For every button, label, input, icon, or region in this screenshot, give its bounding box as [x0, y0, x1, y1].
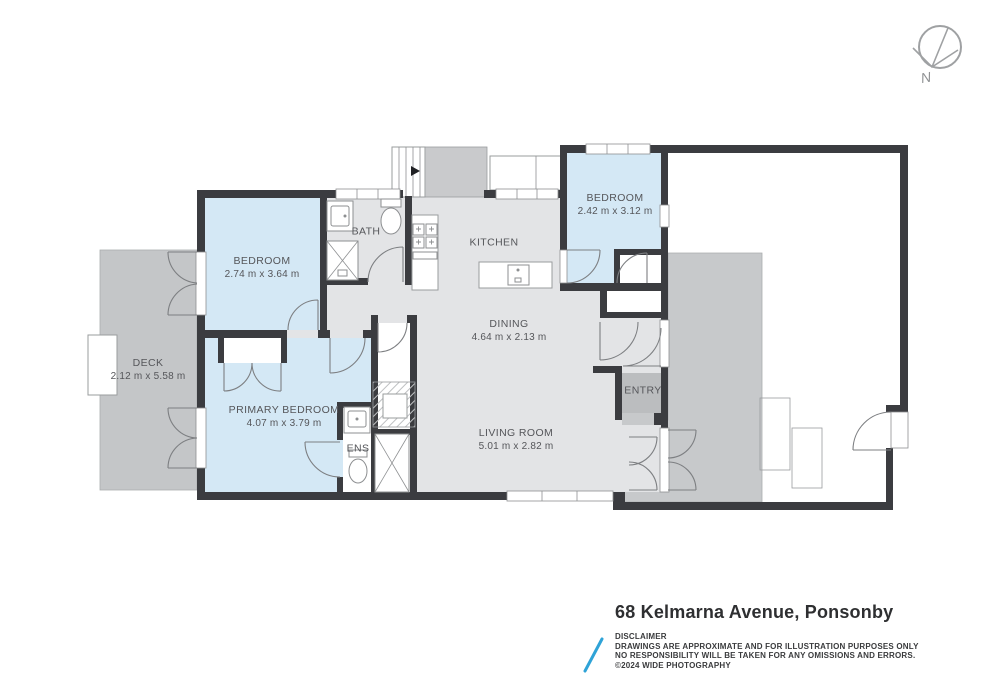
- room-name: DECK: [111, 357, 186, 370]
- bath-toilet-icon: [381, 199, 401, 234]
- stove-icon: [412, 215, 438, 290]
- room-name: DINING: [472, 318, 547, 331]
- room-label-living-room: LIVING ROOM 5.01 m x 2.82 m: [479, 427, 554, 453]
- room-label-primary-bedroom: PRIMARY BEDROOM 4.07 m x 3.79 m: [229, 404, 340, 430]
- room-name: BEDROOM: [225, 255, 300, 268]
- room-name: BATH: [352, 226, 381, 239]
- room-dims: 2.42 m x 3.12 m: [578, 205, 653, 218]
- room-dims: 4.07 m x 3.79 m: [229, 417, 340, 430]
- room-label-kitchen: KITCHEN: [470, 237, 519, 250]
- room-label-dining: DINING 4.64 m x 2.13 m: [472, 318, 547, 344]
- bath-shower-icon: [327, 241, 358, 280]
- disclaimer-text: DISCLAIMER DRAWINGS ARE APPROXIMATE AND …: [615, 632, 919, 670]
- ens-shower-icon: [375, 434, 409, 492]
- room-name: PRIMARY BEDROOM: [229, 404, 340, 417]
- logo-slash-icon: [585, 639, 602, 671]
- outdoor-steps-icon: [760, 398, 822, 488]
- floor-plan-svg: N: [0, 0, 1000, 699]
- kitchen-island-sink-icon: [479, 262, 552, 288]
- bath-vanity-icon: [327, 201, 353, 231]
- page-title: 68 Kelmarna Avenue, Ponsonby: [615, 602, 919, 623]
- room-label-bedroom-2: BEDROOM 2.42 m x 3.12 m: [578, 192, 653, 218]
- room-name: KITCHEN: [470, 237, 519, 250]
- floorplan-page: N BEDROOM 2.74 m x 3.64 m BATH KITCHEN B…: [0, 0, 1000, 699]
- compass-north-icon: N: [913, 26, 961, 86]
- title-block: 68 Kelmarna Avenue, Ponsonby DISCLAIMER …: [615, 602, 919, 670]
- room-label-bedroom-1: BEDROOM 2.74 m x 3.64 m: [225, 255, 300, 281]
- room-dims: 5.01 m x 2.82 m: [479, 440, 554, 453]
- room-name: BEDROOM: [578, 192, 653, 205]
- room-name: LIVING ROOM: [479, 427, 554, 440]
- room-dims: 2.74 m x 3.64 m: [225, 268, 300, 281]
- room-dims: 4.64 m x 2.13 m: [472, 331, 547, 344]
- room-label-bath: BATH: [352, 226, 381, 239]
- disclaimer-line: NO RESPONSIBILITY WILL BE TAKEN FOR ANY …: [615, 651, 919, 661]
- disclaimer-line: DRAWINGS ARE APPROXIMATE AND FOR ILLUSTR…: [615, 642, 919, 652]
- disclaimer-heading: DISCLAIMER: [615, 632, 919, 642]
- room-label-deck: DECK 2.12 m x 5.58 m: [111, 357, 186, 383]
- ens-sink-icon: [344, 407, 370, 433]
- room-name: ENS: [347, 443, 370, 456]
- room-dims: 2.12 m x 5.58 m: [111, 370, 186, 383]
- room-name: ENTRY: [624, 385, 661, 398]
- room-label-entry: ENTRY: [624, 385, 661, 398]
- wardrobe-cylinder-icon: [373, 382, 415, 427]
- svg-text:N: N: [920, 68, 934, 86]
- room-label-ens: ENS: [347, 443, 370, 456]
- disclaimer-line: ©2024 WIDE PHOTOGRAPHY: [615, 661, 919, 671]
